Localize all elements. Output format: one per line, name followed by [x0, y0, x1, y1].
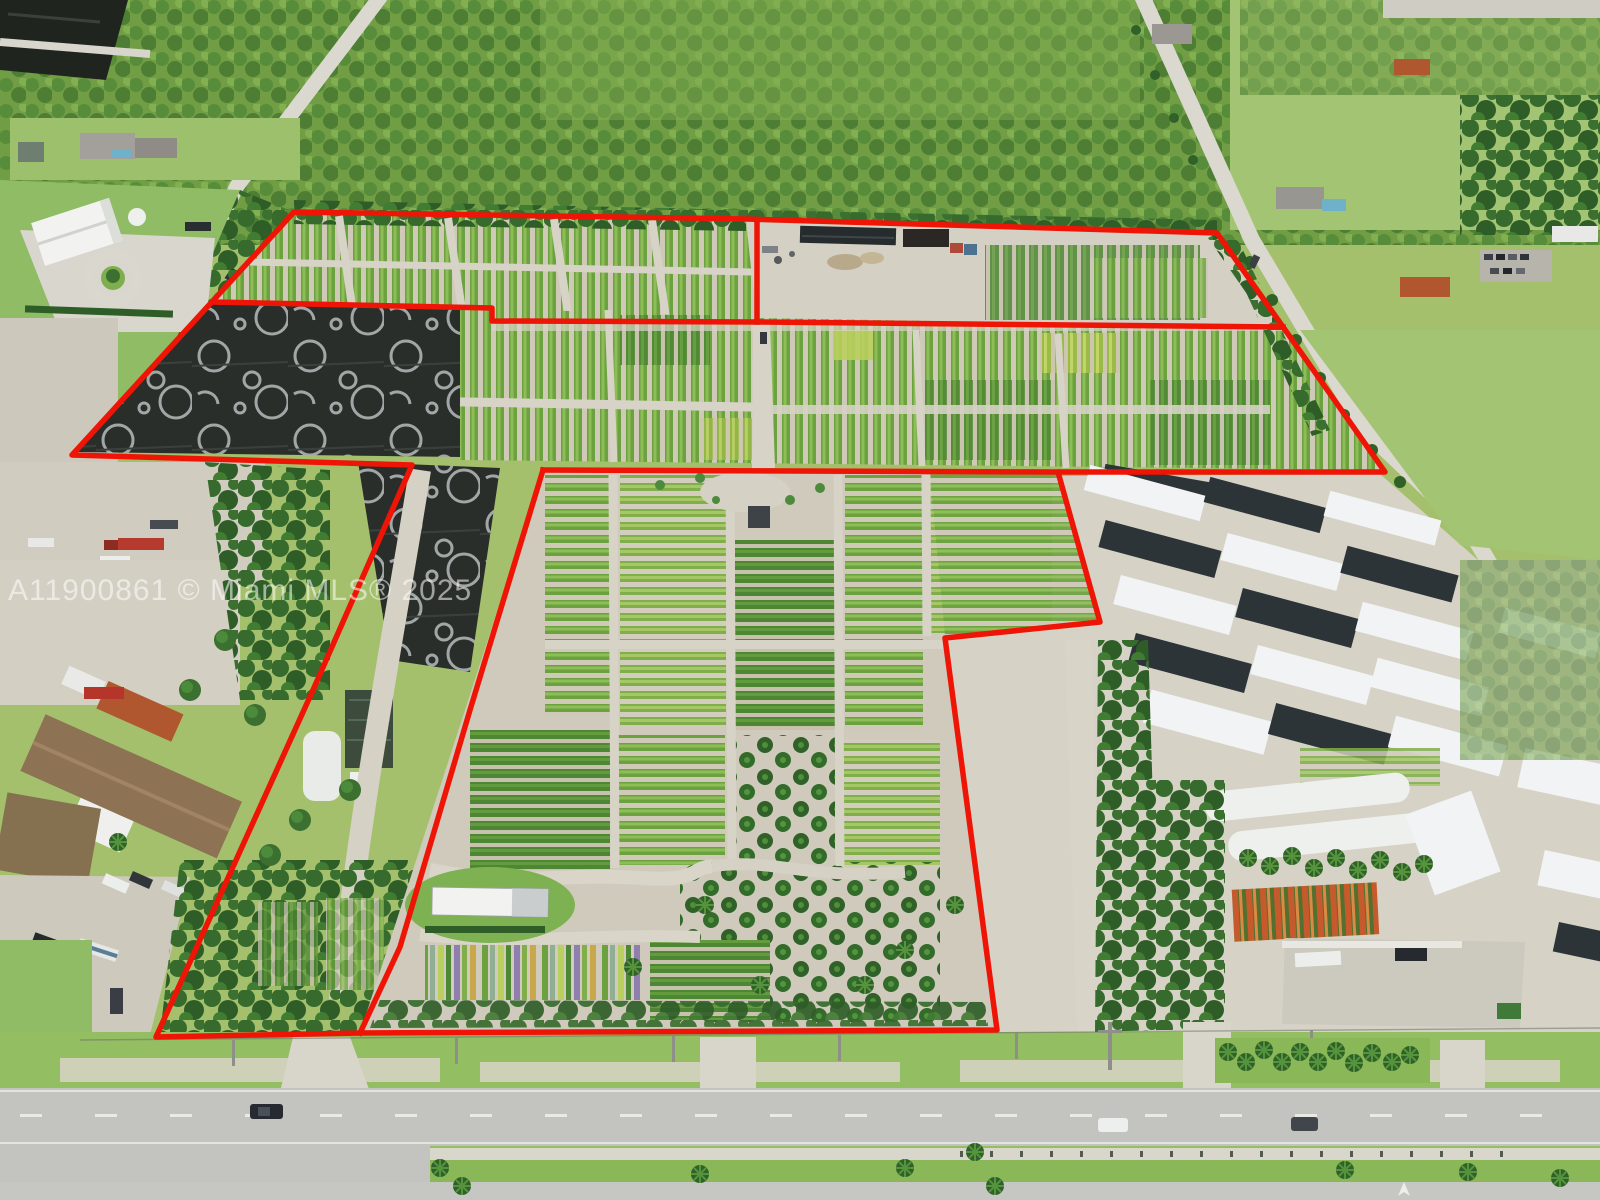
multicolor-nursery-rows — [425, 945, 640, 1000]
red-truck — [118, 538, 164, 550]
office-building — [432, 887, 548, 917]
orange-plant-rows — [1232, 882, 1380, 942]
nursery-fields-upper — [75, 213, 1380, 470]
aerial-photo: A11900861 © Miami MLS® 2025 — [0, 0, 1600, 1200]
dome-structure — [128, 208, 146, 226]
grass-median — [430, 1160, 1600, 1182]
white-bus — [1295, 951, 1342, 967]
white-car — [1098, 1118, 1128, 1132]
gray-car — [1291, 1117, 1318, 1131]
fire-truck — [84, 687, 124, 699]
tractor — [1497, 1003, 1521, 1019]
road-surface — [0, 1088, 1600, 1146]
orange-roof-house — [1394, 59, 1430, 75]
compound-road — [1078, 640, 1090, 1032]
middle-shared-boundary — [543, 470, 1058, 472]
lane-markings — [20, 1114, 1542, 1117]
south-hedge — [370, 1000, 988, 1028]
median-barrier — [430, 1148, 1600, 1160]
black-pickup — [1395, 948, 1427, 961]
blue-roof-shed — [964, 244, 977, 255]
shed — [748, 506, 770, 528]
aerial-photo-canvas: A11900861 © Miami MLS® 2025 — [0, 0, 1600, 1200]
red-roof-shed — [950, 243, 963, 253]
swimming-pool — [112, 149, 132, 158]
mls-watermark: A11900861 © Miami MLS® 2025 — [8, 574, 472, 607]
barn — [903, 229, 949, 247]
hoop-greenhouse — [303, 731, 341, 801]
highway — [0, 1022, 1600, 1200]
